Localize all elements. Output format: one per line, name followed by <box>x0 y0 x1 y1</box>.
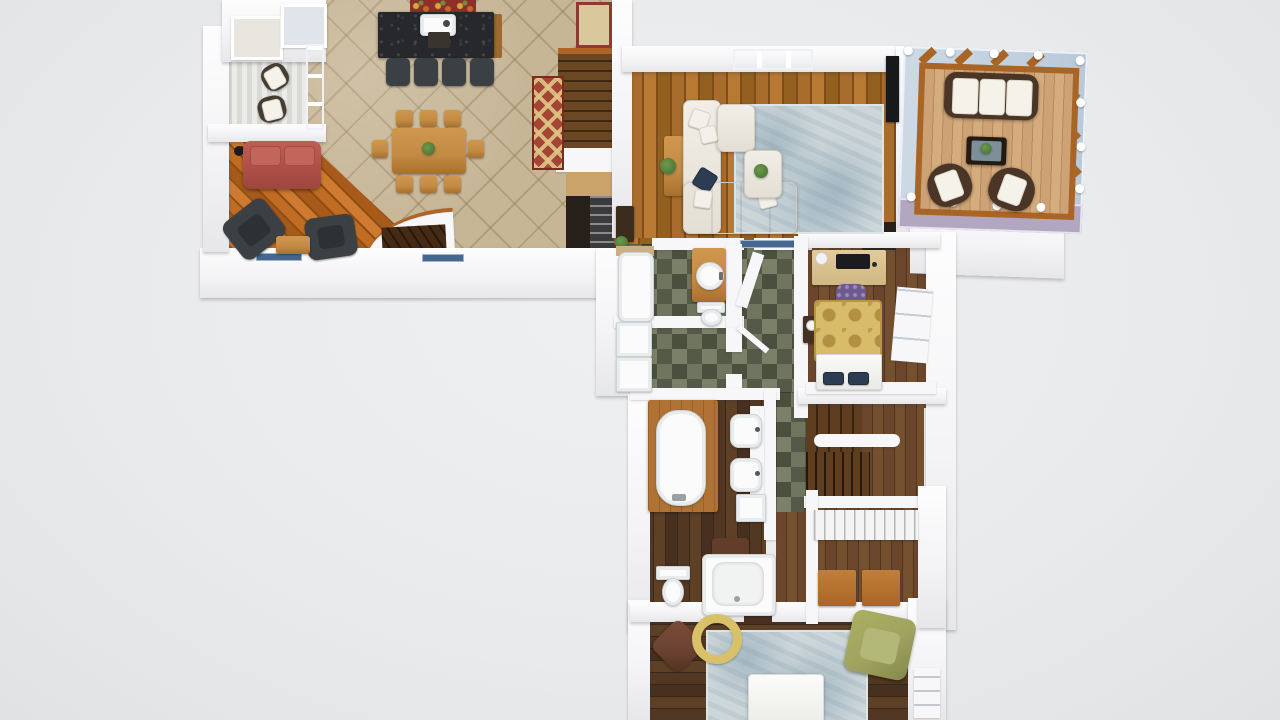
freestanding-tub <box>656 410 706 506</box>
bath-east-wall <box>726 244 742 328</box>
runner-rug <box>534 78 562 168</box>
table-centerpiece <box>422 142 435 155</box>
bar-stool <box>470 58 494 86</box>
door-mat <box>576 2 612 48</box>
side-table-plant <box>660 158 676 174</box>
stair-landing-wall <box>556 148 616 172</box>
master-bath-north-wall <box>630 388 780 400</box>
toilet-bowl <box>701 309 722 326</box>
navy-bed-pillow <box>823 372 844 385</box>
throw-pillow <box>693 189 713 209</box>
master-toilet-bowl <box>662 578 684 606</box>
closet-east-wall <box>918 486 946 628</box>
floor-plan-scene <box>0 0 1280 720</box>
dining-window-sill <box>422 254 464 262</box>
bar-stool <box>442 58 466 86</box>
staircase-up <box>558 54 614 150</box>
west-wall-lower <box>628 394 650 632</box>
family-room-window-sill <box>256 253 302 261</box>
sectional-chaise <box>717 104 755 152</box>
island-faucet <box>443 20 450 27</box>
sofa-cushion <box>250 146 281 166</box>
wicker-sofa-cushion <box>1006 80 1033 117</box>
corner-window <box>914 668 940 718</box>
entry-east-wall <box>612 0 632 238</box>
closet-north-wall <box>804 496 936 508</box>
dining-chair <box>396 110 413 127</box>
sunroom <box>898 46 1088 238</box>
closet-window-box <box>281 4 327 48</box>
stairwell-wood-panel <box>566 172 614 196</box>
bed-gold-duvet <box>816 302 880 360</box>
living-window <box>733 49 813 70</box>
bar-stool <box>414 58 438 86</box>
sink-faucet <box>755 471 760 476</box>
closet-dresser <box>818 570 856 606</box>
laptop <box>836 254 870 269</box>
closet-box <box>231 16 283 60</box>
closet-dresser <box>862 570 900 606</box>
desk-lamp <box>815 252 828 265</box>
stair-landing-floor <box>862 404 924 500</box>
coffee-table <box>276 236 310 254</box>
sink-faucet <box>719 272 723 280</box>
porch-window-band <box>306 44 324 130</box>
shower-drain <box>734 596 740 602</box>
dining-chair <box>372 140 388 158</box>
open-window <box>891 287 933 364</box>
dining-chair <box>444 176 461 193</box>
transom-window <box>740 240 796 248</box>
mouse <box>872 262 877 267</box>
sink-faucet <box>755 427 760 432</box>
dryer <box>616 357 652 392</box>
stairwell-shelves <box>590 196 614 252</box>
bar-stool <box>386 58 410 86</box>
dining-chair <box>396 176 413 193</box>
stair-railing <box>814 434 900 447</box>
closet-shelf-unit <box>814 510 918 540</box>
armchair-seat <box>317 224 346 249</box>
navy-bed-pillow <box>848 372 869 385</box>
dining-chair <box>468 140 484 158</box>
wicker-sofa-cushion <box>952 78 979 115</box>
bedroom-north-wall <box>798 232 940 248</box>
master-bed <box>748 674 824 720</box>
throw-pillow <box>698 124 718 144</box>
dining-chair <box>420 176 437 193</box>
ottoman-plant <box>754 164 768 178</box>
dining-chair <box>444 110 461 127</box>
island-cooktop <box>428 32 450 48</box>
sofa-cushion <box>284 146 315 166</box>
wall-tv <box>886 56 899 122</box>
wicker-sofa-cushion <box>979 79 1006 116</box>
tub-faucet <box>672 494 686 501</box>
bathtub <box>618 252 654 322</box>
round-yellow-cushion <box>692 614 742 664</box>
bath-cabinet <box>736 494 766 522</box>
dining-chair <box>420 110 437 127</box>
washer <box>616 322 652 357</box>
